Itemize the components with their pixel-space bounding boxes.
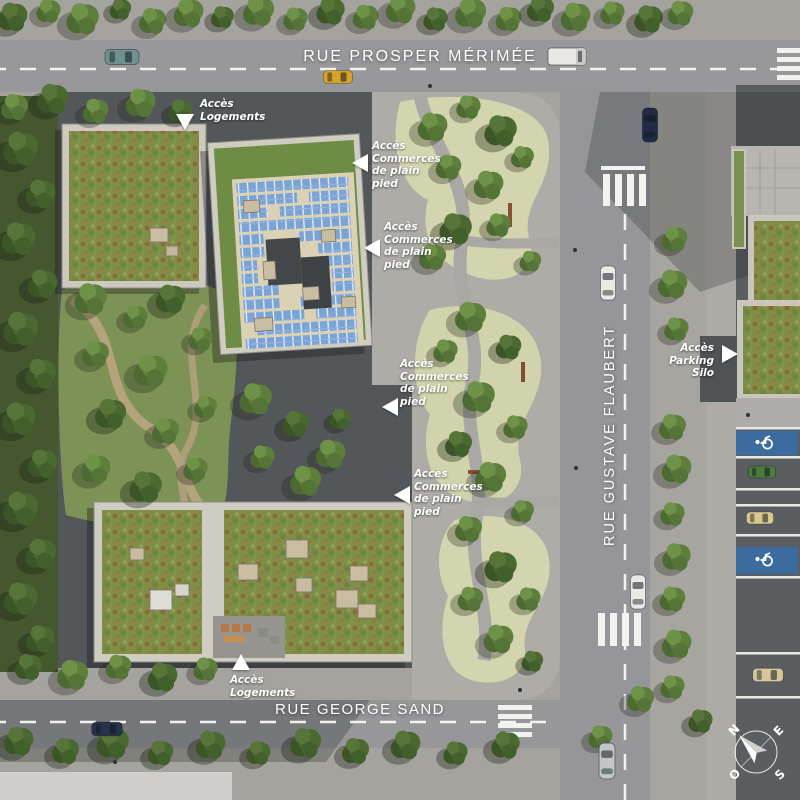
- car: [748, 466, 775, 478]
- car: [92, 722, 123, 736]
- south-west-building-roof: [0, 772, 232, 800]
- car: [601, 266, 616, 300]
- car: [599, 743, 615, 779]
- delivery-truck: [548, 48, 586, 65]
- car: [643, 108, 658, 142]
- car: [753, 668, 784, 682]
- car: [324, 71, 353, 84]
- sedum-roof-west-wing: [102, 510, 202, 654]
- car: [631, 575, 646, 609]
- disabled-parking-bay: [736, 431, 798, 455]
- building-south: [87, 502, 412, 668]
- sedum-roof: [69, 131, 199, 281]
- roof-structure: [150, 228, 168, 242]
- roof-structure: [166, 246, 178, 256]
- stop-bar: [601, 166, 645, 170]
- bench: [521, 362, 525, 382]
- car: [105, 50, 139, 65]
- site-plan-svg: N E S O: [0, 0, 800, 800]
- building-northwest: [55, 124, 206, 294]
- silo-green-strip: [733, 150, 745, 248]
- car: [746, 512, 773, 524]
- site-plan-render: N E S O RUE PROSPER MÉRIMÉE RUE GUSTAVE …: [0, 0, 800, 800]
- road-rue-prosper-merimee: [0, 40, 800, 92]
- silo-green-terrace: [743, 306, 800, 394]
- roof-courtyard-void: [301, 256, 332, 310]
- silo-entry-pavement: [736, 398, 800, 428]
- building-central-solar: [200, 134, 373, 363]
- disabled-parking-bay: [736, 547, 798, 574]
